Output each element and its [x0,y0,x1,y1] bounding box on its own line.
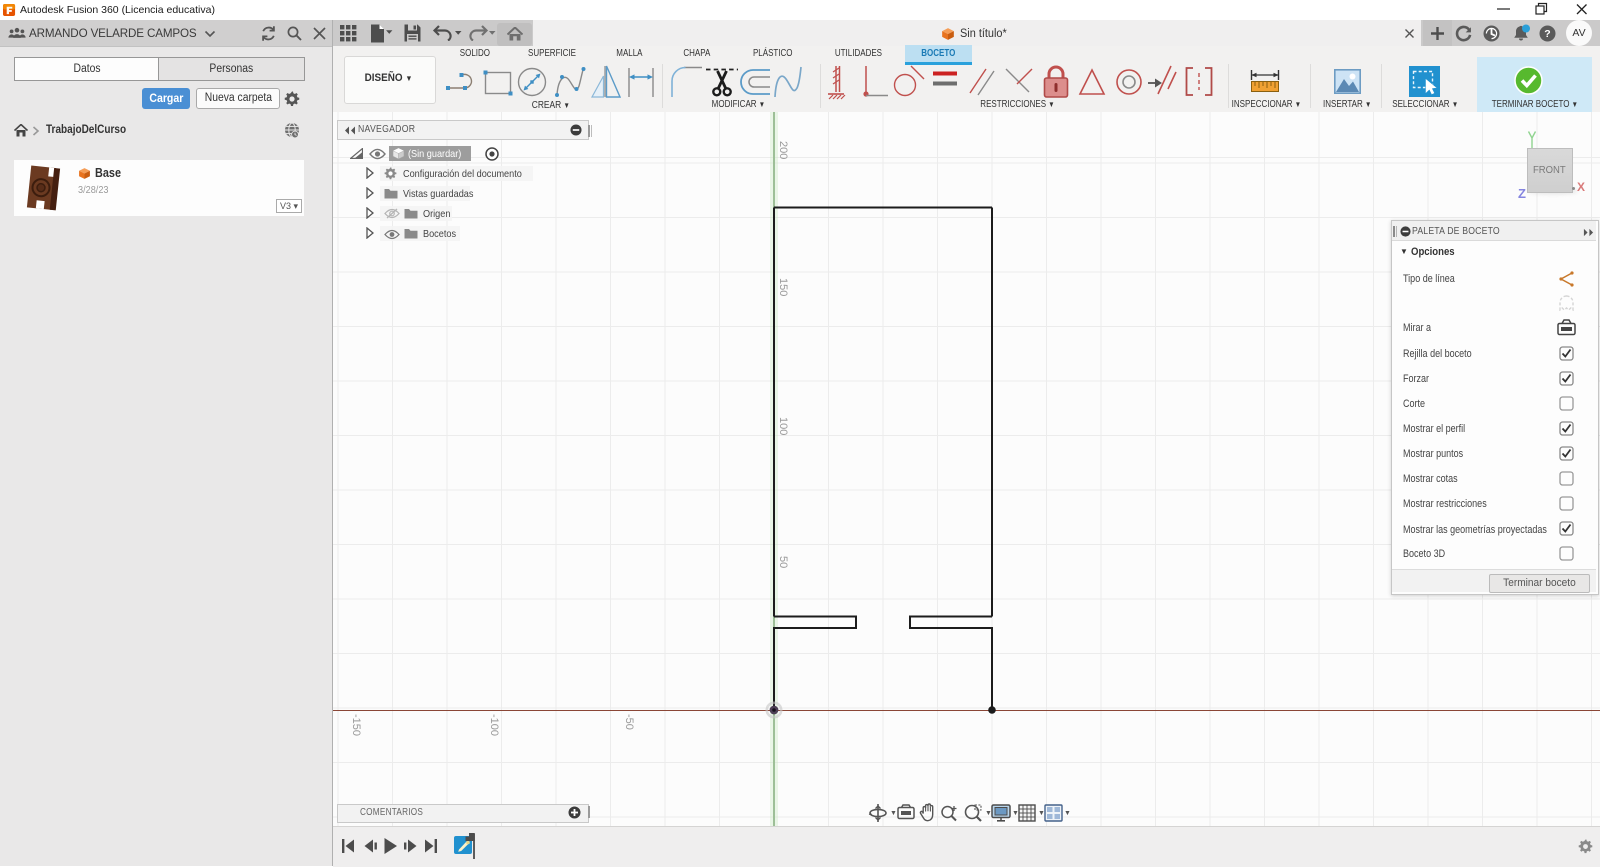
svg-text:?: ? [1544,28,1550,40]
